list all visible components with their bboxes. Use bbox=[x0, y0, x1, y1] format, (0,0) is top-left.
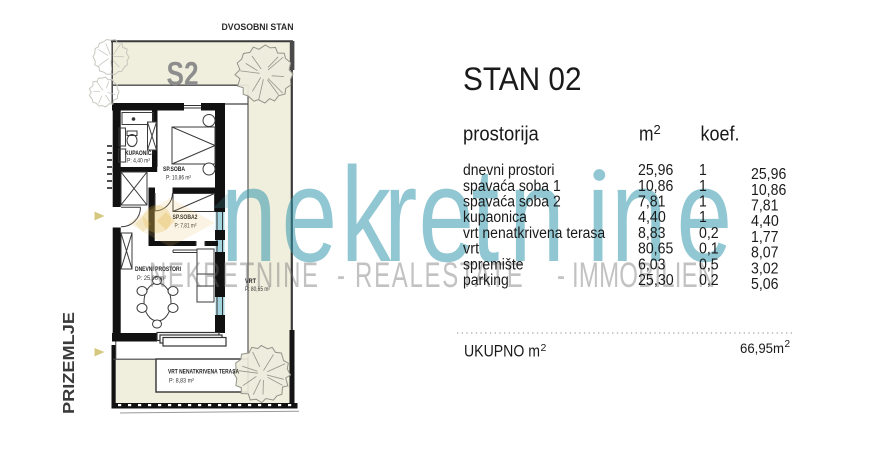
svg-text:S2: S2 bbox=[167, 55, 199, 92]
svg-text:2: 2 bbox=[541, 342, 547, 354]
svg-text:25,30: 25,30 bbox=[638, 272, 674, 289]
svg-text:m: m bbox=[639, 123, 654, 146]
svg-text:NEKRETNINE: NEKRETNINE bbox=[149, 257, 320, 295]
svg-text:vrt: vrt bbox=[463, 241, 480, 258]
svg-text:2: 2 bbox=[785, 339, 791, 350]
svg-text:UKUPNO m: UKUPNO m bbox=[464, 342, 540, 361]
svg-text:0,2: 0,2 bbox=[699, 272, 719, 289]
svg-text:10,86: 10,86 bbox=[751, 182, 786, 199]
svg-text:4,40: 4,40 bbox=[638, 209, 666, 226]
svg-text:1: 1 bbox=[699, 162, 707, 179]
svg-text:- IMMOBILIEN: - IMMOBILIEN bbox=[557, 257, 715, 295]
svg-text:kupaonica: kupaonica bbox=[463, 209, 527, 226]
svg-text:PRIZEMLJE: PRIZEMLJE bbox=[61, 312, 78, 414]
svg-text:koef.: koef. bbox=[701, 123, 740, 146]
svg-text:KUPAONICA: KUPAONICA bbox=[125, 150, 155, 157]
svg-text:1,77: 1,77 bbox=[751, 229, 779, 246]
svg-text:DVOSOBNI STAN: DVOSOBNI STAN bbox=[222, 22, 294, 33]
svg-text:P: 10,86 m²: P: 10,86 m² bbox=[166, 176, 191, 182]
svg-text:P: 8,83 m²: P: 8,83 m² bbox=[169, 379, 194, 385]
svg-text:1: 1 bbox=[699, 178, 707, 195]
svg-text:prostorija: prostorija bbox=[463, 123, 539, 146]
svg-text:dnevni prostori: dnevni prostori bbox=[463, 162, 555, 179]
svg-text:0,2: 0,2 bbox=[699, 225, 719, 242]
svg-text:66,95m: 66,95m bbox=[740, 340, 784, 356]
svg-text:spremište: spremište bbox=[463, 256, 524, 273]
svg-text:SP.SOBA: SP.SOBA bbox=[163, 166, 185, 173]
svg-text:spavaća soba 1: spavaća soba 1 bbox=[463, 178, 561, 195]
svg-text:P: 4,40 m²: P: 4,40 m² bbox=[127, 159, 150, 165]
svg-text:0,1: 0,1 bbox=[699, 241, 719, 258]
svg-text:1: 1 bbox=[699, 209, 707, 226]
svg-text:25,96: 25,96 bbox=[751, 166, 786, 183]
svg-text:STAN 02: STAN 02 bbox=[463, 61, 582, 97]
svg-text:4,40: 4,40 bbox=[751, 213, 779, 230]
svg-text:parking: parking bbox=[463, 272, 509, 289]
svg-text:3,02: 3,02 bbox=[751, 260, 779, 277]
svg-text:0,5: 0,5 bbox=[699, 256, 719, 273]
svg-text:80,65: 80,65 bbox=[638, 241, 673, 258]
svg-text:25,96: 25,96 bbox=[638, 162, 673, 179]
svg-text:8,83: 8,83 bbox=[638, 225, 666, 242]
svg-text:7,81: 7,81 bbox=[751, 198, 779, 215]
svg-text:VRT NENATKRIVENA TERASA: VRT NENATKRIVENA TERASA bbox=[168, 369, 239, 376]
svg-text:1: 1 bbox=[699, 194, 707, 211]
svg-text:5,06: 5,06 bbox=[751, 276, 779, 293]
svg-text:8,07: 8,07 bbox=[751, 245, 779, 262]
svg-text:vrt nenatkrivena terasa: vrt nenatkrivena terasa bbox=[463, 225, 606, 242]
svg-text:spavaća soba 2: spavaća soba 2 bbox=[463, 194, 561, 211]
svg-text:2: 2 bbox=[654, 122, 661, 137]
svg-text:7,81: 7,81 bbox=[638, 194, 666, 211]
svg-text:10,86: 10,86 bbox=[638, 178, 673, 195]
svg-text:6,03: 6,03 bbox=[638, 256, 666, 273]
